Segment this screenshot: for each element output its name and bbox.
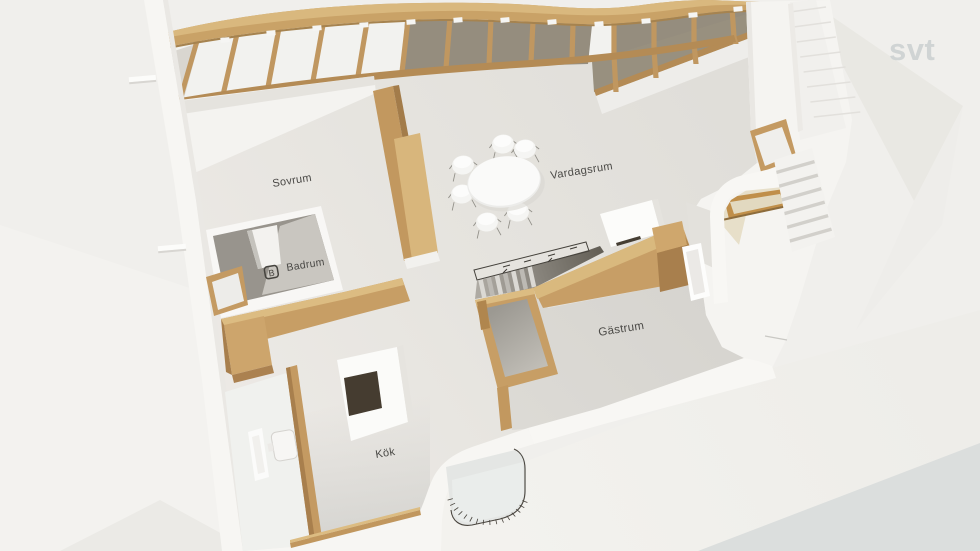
svg-text:svt: svt bbox=[889, 32, 935, 67]
